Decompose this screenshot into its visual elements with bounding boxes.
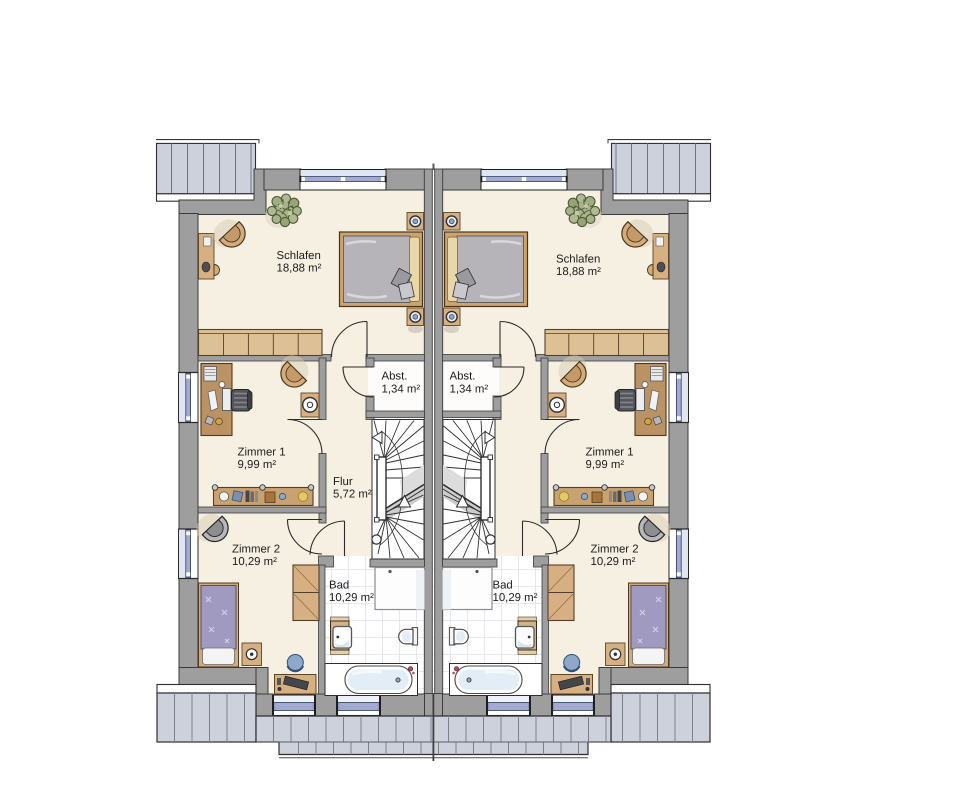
svg-text:9,99 m²: 9,99 m² [238, 459, 277, 471]
svg-text:9,99 m²: 9,99 m² [586, 459, 625, 471]
svg-text:10,29 m²: 10,29 m² [591, 556, 636, 568]
svg-text:Schlafen: Schlafen [277, 250, 321, 262]
svg-text:18,88 m²: 18,88 m² [277, 262, 322, 274]
svg-text:Bad: Bad [329, 580, 349, 592]
svg-text:Abst.: Abst. [382, 371, 408, 383]
svg-text:5,72 m²: 5,72 m² [333, 489, 372, 501]
svg-text:10,29 m²: 10,29 m² [232, 556, 277, 568]
svg-text:10,29 m²: 10,29 m² [329, 592, 374, 604]
svg-text:18,88 m²: 18,88 m² [556, 266, 601, 278]
svg-text:1,34 m²: 1,34 m² [450, 383, 489, 395]
svg-text:Zimmer 2: Zimmer 2 [232, 543, 280, 555]
svg-text:Abst.: Abst. [450, 371, 476, 383]
svg-text:10,29 m²: 10,29 m² [493, 592, 538, 604]
svg-text:1,34 m²: 1,34 m² [382, 383, 421, 395]
svg-text:Zimmer 2: Zimmer 2 [591, 543, 639, 555]
svg-text:Bad: Bad [493, 580, 513, 592]
svg-text:Schlafen: Schlafen [556, 254, 600, 266]
svg-text:Zimmer 1: Zimmer 1 [238, 447, 286, 459]
svg-text:Flur: Flur [333, 476, 353, 488]
svg-text:Zimmer 1: Zimmer 1 [586, 447, 634, 459]
